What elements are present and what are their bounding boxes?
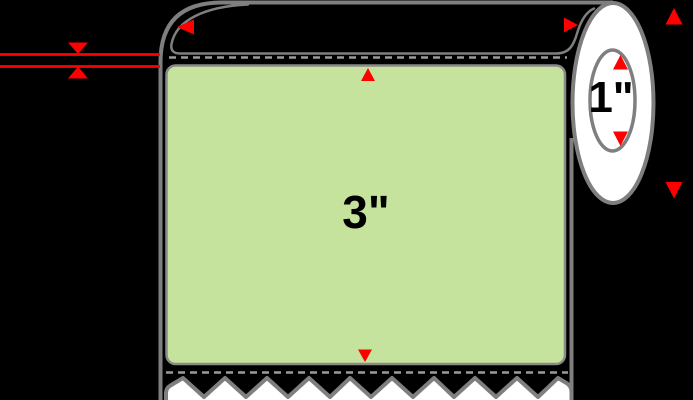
roll-width-arrow-right-icon <box>564 18 578 33</box>
label-roll-diagram: 3" 1" <box>0 0 693 400</box>
diagram-canvas: 3" 1" <box>0 0 693 400</box>
core-diameter-text: 1" <box>588 73 633 122</box>
gap-arrow-down-icon <box>68 43 88 55</box>
liner-perforated-edge <box>166 378 572 400</box>
label-height-dimension-text: 3" <box>342 186 389 238</box>
roll-diameter-arrow-down-icon <box>666 182 683 199</box>
roll-diameter-arrow-up-icon <box>666 8 683 25</box>
gap-arrow-up-icon <box>68 67 88 79</box>
roll-inner-wrap-edge <box>171 5 594 54</box>
